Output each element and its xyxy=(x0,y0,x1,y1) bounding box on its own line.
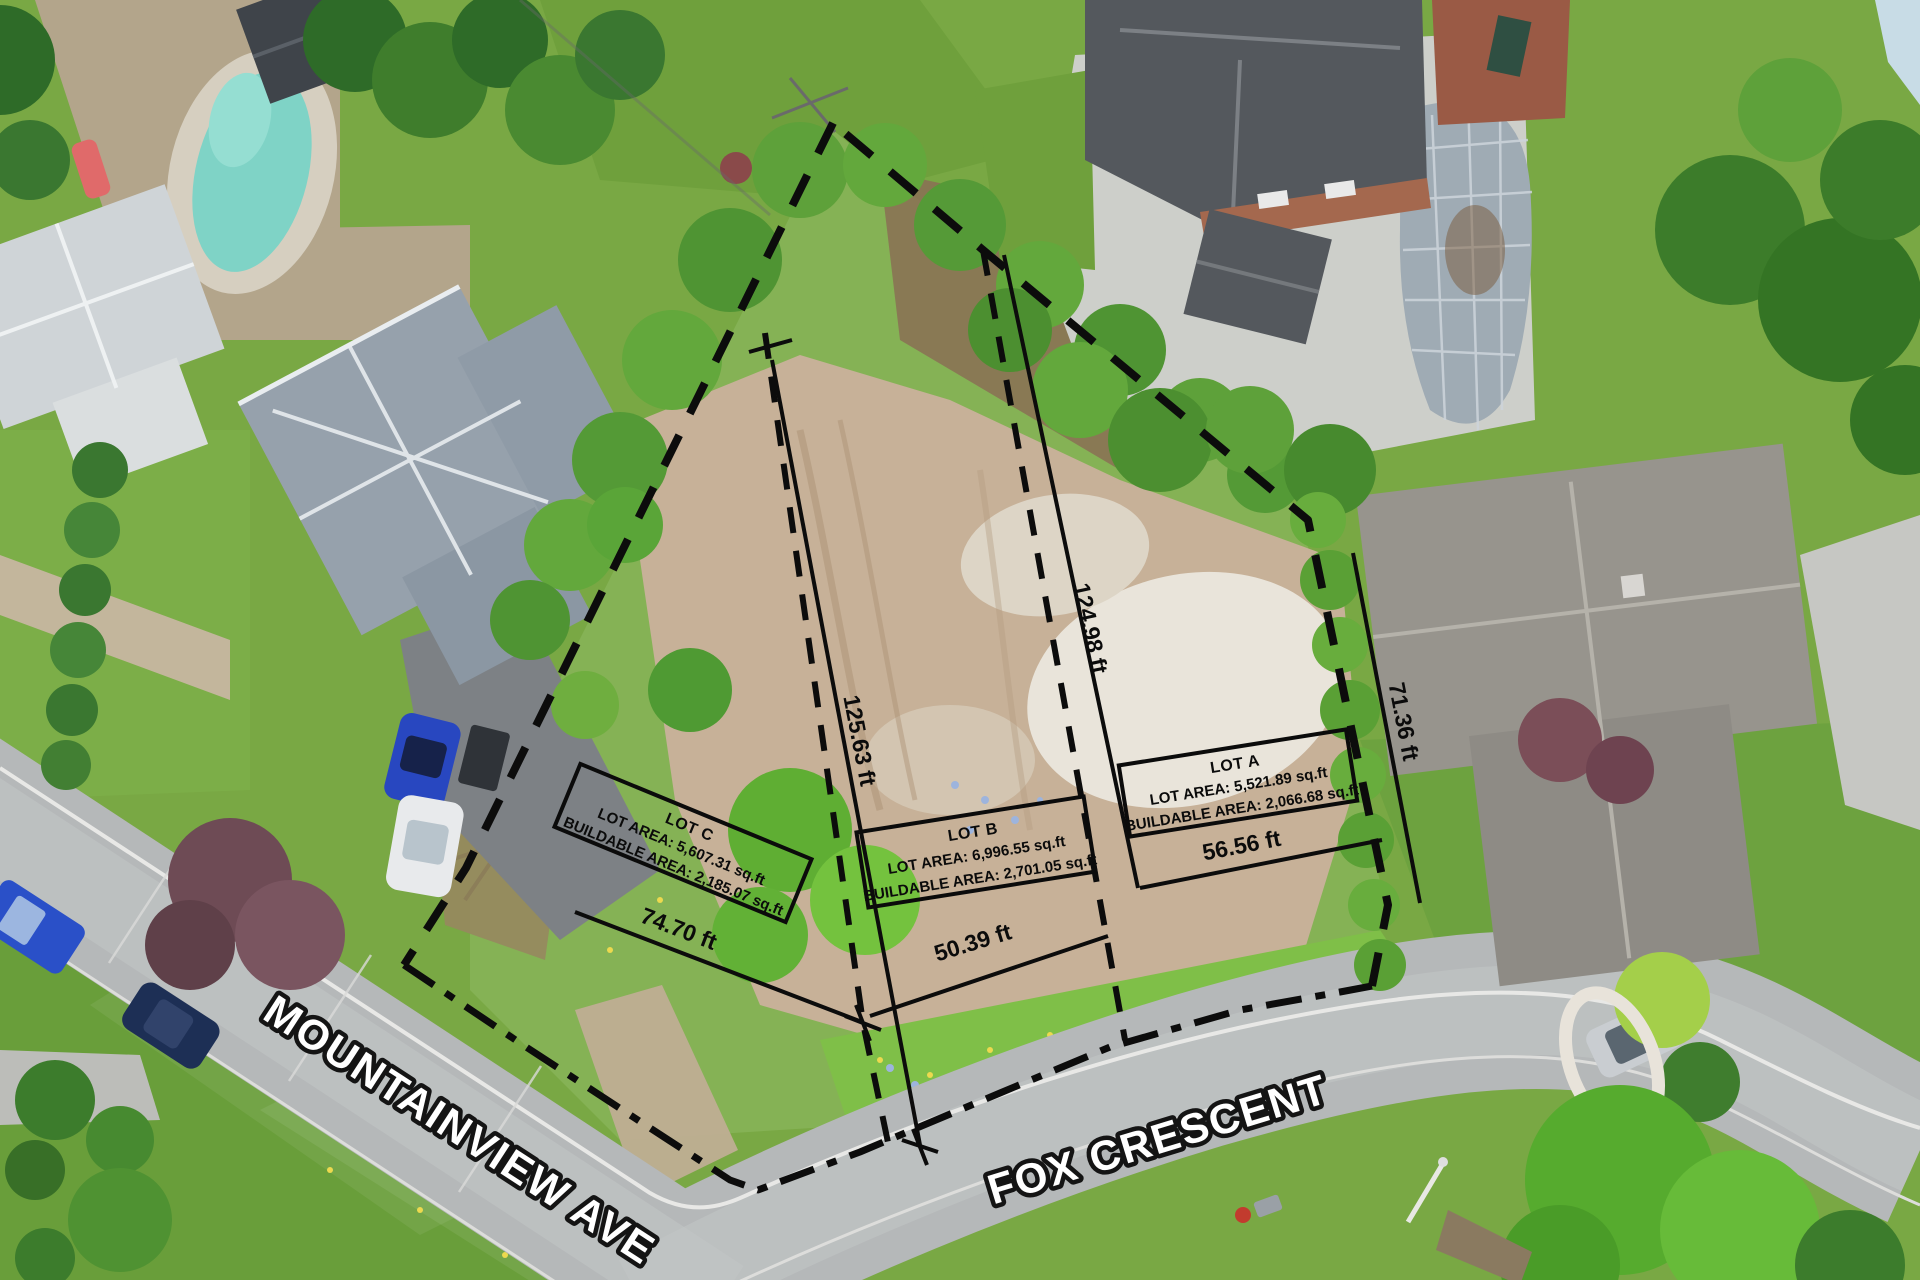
aerial-photo-canvas: LOT C LOT AREA: 5,607.31 sq.ft BUILDABLE… xyxy=(0,0,1920,1280)
aerial-survey-image: LOT C LOT AREA: 5,607.31 sq.ft BUILDABLE… xyxy=(0,0,1920,1280)
